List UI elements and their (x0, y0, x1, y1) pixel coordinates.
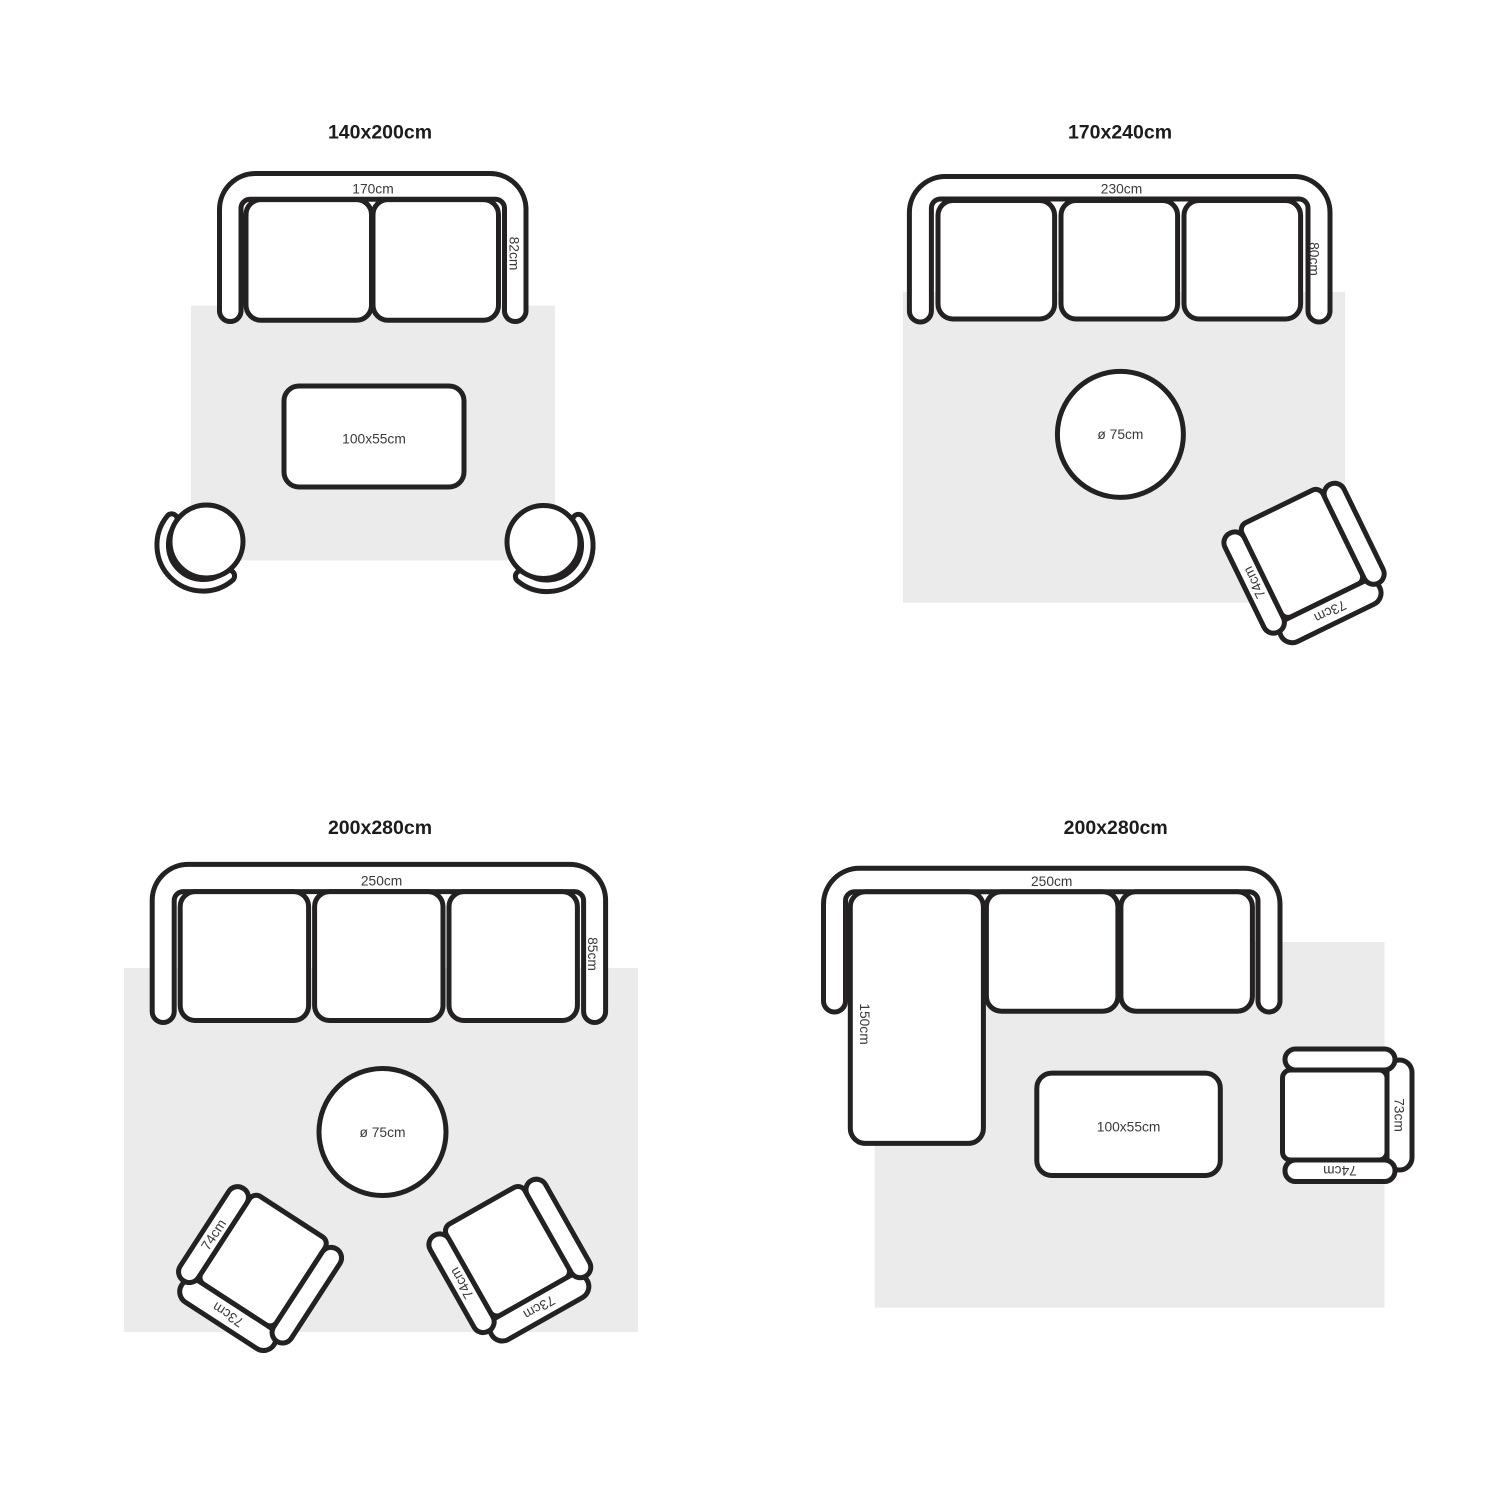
svg-text:100x55cm: 100x55cm (342, 431, 406, 446)
svg-text:170cm: 170cm (352, 181, 393, 196)
svg-text:74cm: 74cm (1323, 1163, 1357, 1178)
svg-text:ø 75cm: ø 75cm (360, 1125, 406, 1140)
svg-text:80cm: 80cm (1307, 242, 1322, 276)
svg-text:ø 75cm: ø 75cm (1097, 427, 1143, 442)
svg-text:140x200cm: 140x200cm (328, 121, 432, 143)
svg-text:200x280cm: 200x280cm (328, 817, 432, 839)
svg-text:85cm: 85cm (585, 937, 600, 971)
svg-text:170x240cm: 170x240cm (1068, 121, 1172, 143)
svg-text:250cm: 250cm (1031, 874, 1072, 889)
svg-text:100x55cm: 100x55cm (1097, 1119, 1161, 1134)
svg-text:73cm: 73cm (1392, 1098, 1407, 1132)
svg-text:150cm: 150cm (857, 1003, 872, 1044)
svg-text:82cm: 82cm (507, 237, 522, 271)
svg-text:250cm: 250cm (361, 873, 402, 888)
svg-text:230cm: 230cm (1101, 181, 1142, 196)
svg-text:200x280cm: 200x280cm (1064, 817, 1168, 839)
